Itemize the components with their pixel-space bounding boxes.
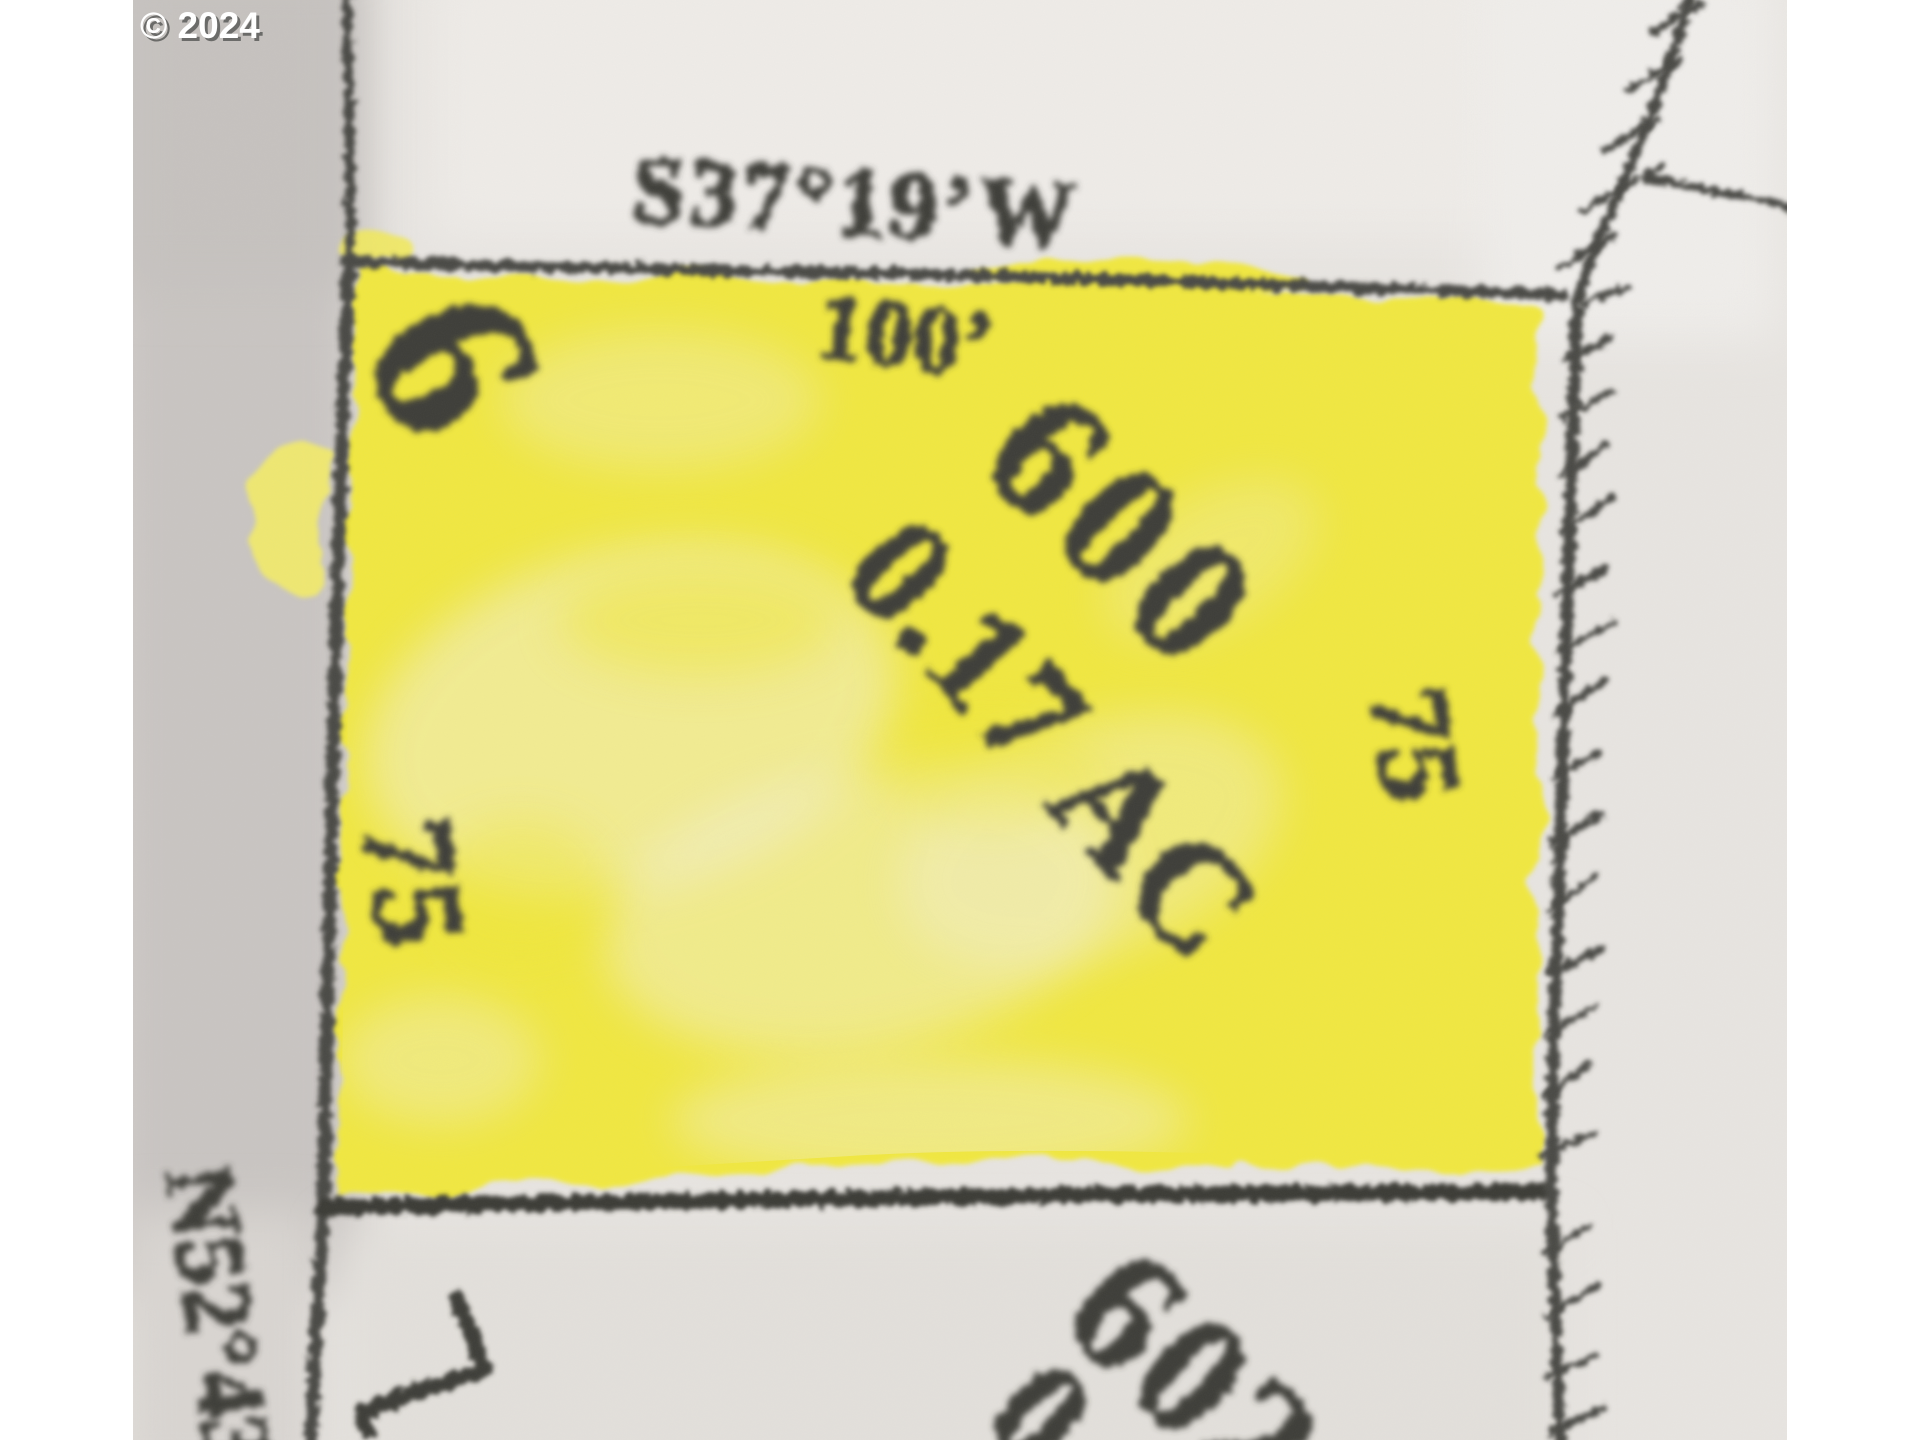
- svg-text:© 2024: © 2024: [140, 5, 260, 46]
